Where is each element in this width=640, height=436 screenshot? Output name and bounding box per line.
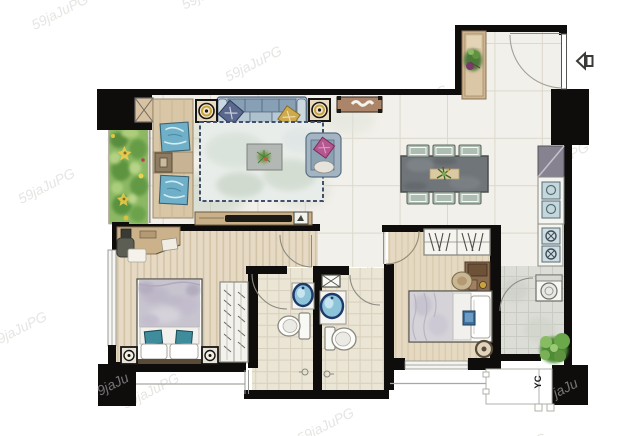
svg-text:YC: YC xyxy=(533,375,544,388)
